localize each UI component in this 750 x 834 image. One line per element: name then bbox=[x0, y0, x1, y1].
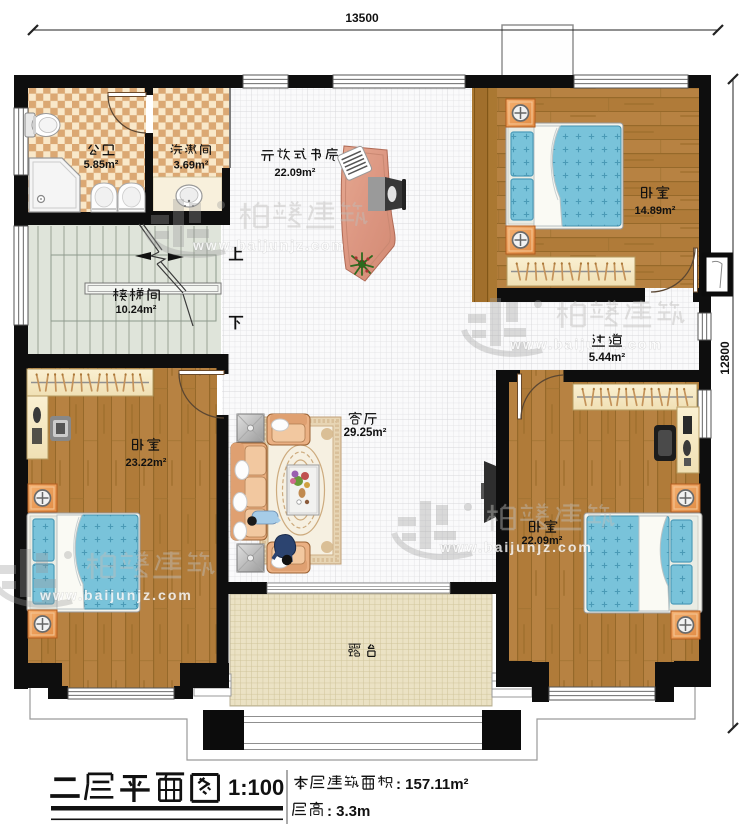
svg-text:www.baijunjz.com: www.baijunjz.com bbox=[39, 587, 193, 603]
svg-text:12800: 12800 bbox=[718, 341, 732, 375]
svg-text:5.44m²: 5.44m² bbox=[589, 352, 626, 364]
svg-text:www.baijunjz.com: www.baijunjz.com bbox=[439, 539, 593, 555]
svg-text:13500: 13500 bbox=[345, 11, 379, 25]
svg-text:14.89m²: 14.89m² bbox=[635, 205, 676, 217]
svg-text:: 157.11m²: : 157.11m² bbox=[396, 776, 469, 793]
svg-text:5.85m²: 5.85m² bbox=[84, 159, 119, 171]
svg-text:29.25m²: 29.25m² bbox=[344, 427, 387, 439]
svg-text:1:100: 1:100 bbox=[228, 775, 284, 800]
svg-text:22.09m²: 22.09m² bbox=[275, 167, 316, 179]
svg-text:www.baijunjz.com: www.baijunjz.com bbox=[192, 237, 346, 253]
svg-text:3.69m²: 3.69m² bbox=[174, 159, 209, 171]
svg-text:www.baijunjz.com: www.baijunjz.com bbox=[509, 336, 663, 352]
svg-text:22.09m²: 22.09m² bbox=[522, 535, 563, 547]
svg-text:10.24m²: 10.24m² bbox=[116, 304, 157, 316]
svg-text:23.22m²: 23.22m² bbox=[126, 457, 167, 469]
svg-text:: 3.3m: : 3.3m bbox=[327, 803, 370, 820]
